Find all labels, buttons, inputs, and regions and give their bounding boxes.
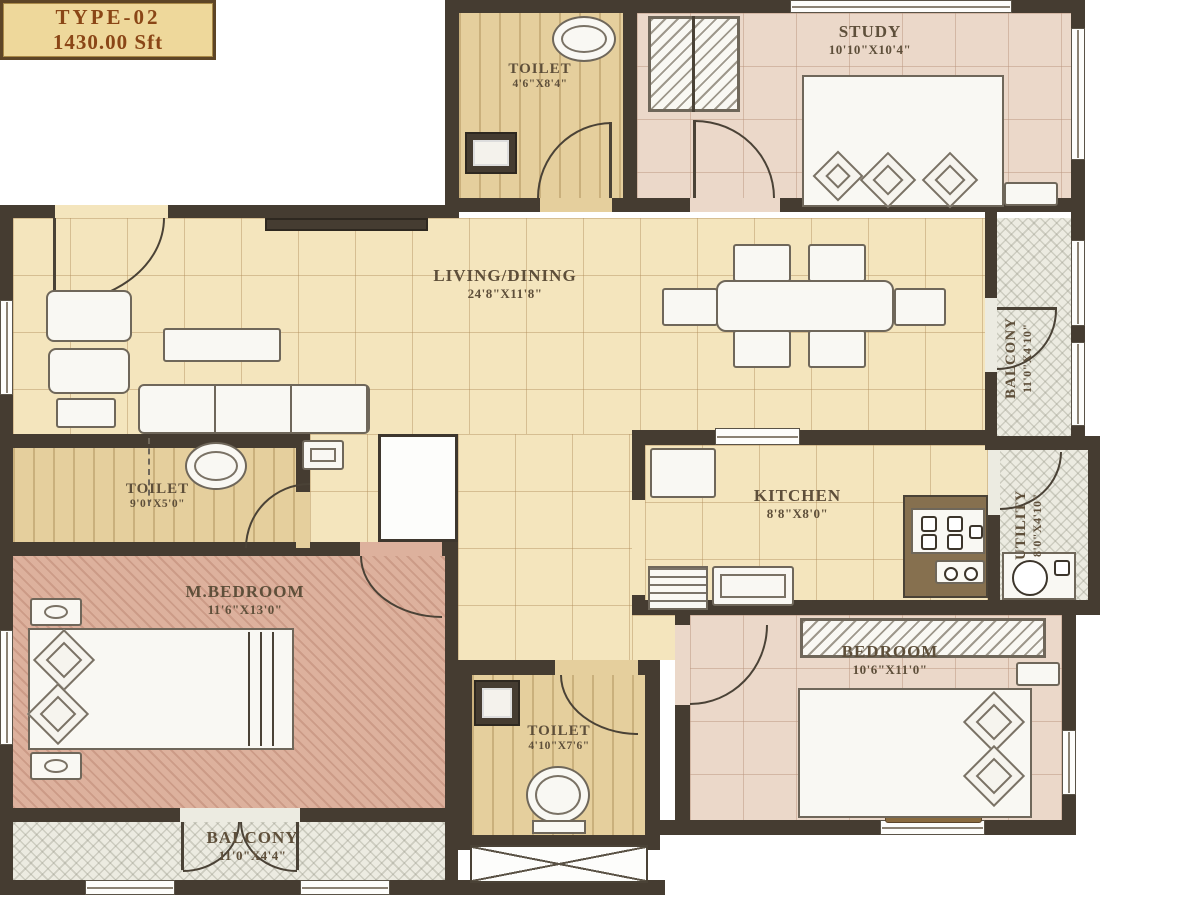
wall-mbed-bottom-2 [300, 808, 458, 822]
room-dims: 4'6"X8'4" [455, 78, 625, 92]
label-bedroom: BEDROOM 10'6"X11'0" [765, 642, 1015, 678]
counter-unit [935, 560, 985, 584]
room-name: BEDROOM [765, 642, 1015, 662]
doorway-kitchen [632, 500, 645, 595]
wall-kitchen-top-1 [632, 430, 715, 445]
dining-chair [894, 288, 946, 326]
floor-plan: TOILET 4'6"X8'4" STUDY 10'10"X10'4" LIVI… [0, 0, 1200, 900]
door-leaf-study [693, 120, 696, 198]
room-name: TOILET [455, 60, 625, 78]
wall-mbed-bottom-1 [0, 808, 180, 822]
wall-kitchen-top-2 [800, 430, 988, 445]
room-dims: 9'0"X5'0" [55, 498, 260, 512]
tv-console [265, 218, 428, 231]
coffee-table [163, 328, 281, 362]
window-study-right [1071, 28, 1085, 160]
kitchen-sink [712, 566, 794, 606]
wall-bedroom-left-1 [675, 615, 690, 625]
nightstand [30, 598, 82, 626]
room-dims: 8'0"X4'10" [1030, 455, 1044, 595]
room-name: TOILET [55, 480, 260, 498]
sink-counter [465, 132, 517, 174]
window-balcony-right-2 [1071, 342, 1085, 426]
armchair [48, 348, 130, 394]
dresser [1016, 662, 1060, 686]
duct-shaft [470, 845, 648, 883]
label-living-dining: LIVING/DINING 24'8"X11'8" [360, 266, 650, 302]
doorway-m-bedroom [360, 542, 442, 556]
sofa [138, 384, 370, 434]
wall-toilet-foyer [623, 0, 637, 198]
doorway-main [55, 205, 168, 218]
wardrobe-divider [692, 16, 695, 112]
doorway-toilet-top [540, 198, 612, 212]
dining-chair [662, 288, 718, 326]
room-dims: 11'0"X4'4" [150, 848, 355, 864]
wall-bedroom-right [1062, 615, 1076, 835]
wall-toilet-top-left [445, 0, 459, 212]
doorway-study [690, 198, 780, 212]
wc-cistern [532, 820, 586, 834]
room-dims: 10'6"X11'0" [765, 662, 1015, 678]
dining-chair [808, 330, 866, 368]
room-name: TOILET [478, 722, 640, 740]
side-table [56, 398, 116, 428]
wall-toilet-bottom-right [645, 660, 660, 850]
room-dims: 11'6"X13'0" [90, 602, 400, 618]
room-dims: 10'10"X10'4" [745, 42, 995, 58]
wall-bedroom-left-2 [675, 705, 690, 835]
window-balcony-right-1 [1071, 240, 1085, 326]
label-m-bedroom: M.BEDROOM 11'6"X13'0" [90, 582, 400, 618]
wall-toilet-bottom-left [458, 660, 472, 850]
room-name: KITCHEN [700, 486, 895, 506]
nightstand [30, 752, 82, 780]
room-dims: 11'0"X4'10" [1020, 268, 1034, 448]
utility-shaft [378, 434, 458, 542]
nightstand [1004, 182, 1058, 206]
room-name: BALCONY [150, 828, 355, 848]
armchair [46, 290, 132, 342]
dining-chair [733, 330, 791, 368]
room-dims: 24'8"X11'8" [360, 286, 650, 302]
window-kitchen-service [715, 428, 800, 445]
room-name: LIVING/DINING [360, 266, 650, 286]
corridor-floor [458, 434, 632, 660]
wall-utility-right [1088, 450, 1100, 615]
label-toilet-left: TOILET 9'0"X5'0" [55, 480, 260, 512]
door-leaf-toilet-top [609, 122, 612, 198]
room-name: BALCONY [1002, 268, 1020, 448]
room-name: STUDY [745, 22, 995, 42]
doorway-toilet-bottom [555, 660, 638, 675]
dining-table [716, 280, 894, 332]
room-dims: 8'8"X8'0" [700, 506, 895, 522]
area-label: 1430.00 Sft [9, 30, 207, 55]
doorway-balcony-bottom [180, 808, 300, 822]
label-kitchen: KITCHEN 8'8"X8'0" [700, 486, 895, 522]
label-balcony-bottom: BALCONY 11'0"X4'4" [150, 828, 355, 864]
wall-toilet-bottom-top-1 [458, 660, 555, 675]
dish-rack [648, 566, 708, 610]
label-study: STUDY 10'10"X10'4" [745, 22, 995, 58]
stove [911, 508, 985, 554]
room-name: UTILITY [1012, 455, 1030, 595]
window-living-left [0, 300, 13, 395]
dining-chair [733, 244, 791, 282]
hand-basin [302, 440, 344, 470]
label-utility: UTILITY 8'0"X4'10" [1012, 455, 1068, 595]
doorway-balcony-right [985, 298, 997, 372]
window-balcony-bottom-2 [300, 880, 390, 895]
window-mbedroom-left [0, 630, 13, 745]
wall-mbed-top-2 [442, 542, 458, 556]
dining-chair [808, 244, 866, 282]
bedroom-corridor-floor [632, 615, 675, 660]
label-toilet-bottom: TOILET 4'10"X7'6" [478, 722, 640, 754]
window-balcony-bottom-1 [85, 880, 175, 895]
room-name: M.BEDROOM [90, 582, 400, 602]
shower-tray [474, 680, 520, 726]
type-label: TYPE-02 [9, 5, 207, 30]
wc-toilet [526, 766, 590, 824]
window-study-top [790, 0, 1012, 13]
label-balcony-right: BALCONY 11'0"X4'10" [1002, 268, 1062, 448]
doorway-utility [988, 450, 1000, 515]
type-area-box: TYPE-02 1430.00 Sft [0, 0, 216, 60]
label-toilet-top: TOILET 4'6"X8'4" [455, 60, 625, 92]
wash-basin [552, 16, 616, 62]
room-dims: 4'10"X7'6" [478, 740, 640, 754]
window-bedroom-right [1062, 730, 1076, 795]
doorway-bedroom [675, 625, 690, 705]
wall-bedroom-bottom [660, 820, 1076, 835]
wall-mbed-right [445, 556, 458, 822]
